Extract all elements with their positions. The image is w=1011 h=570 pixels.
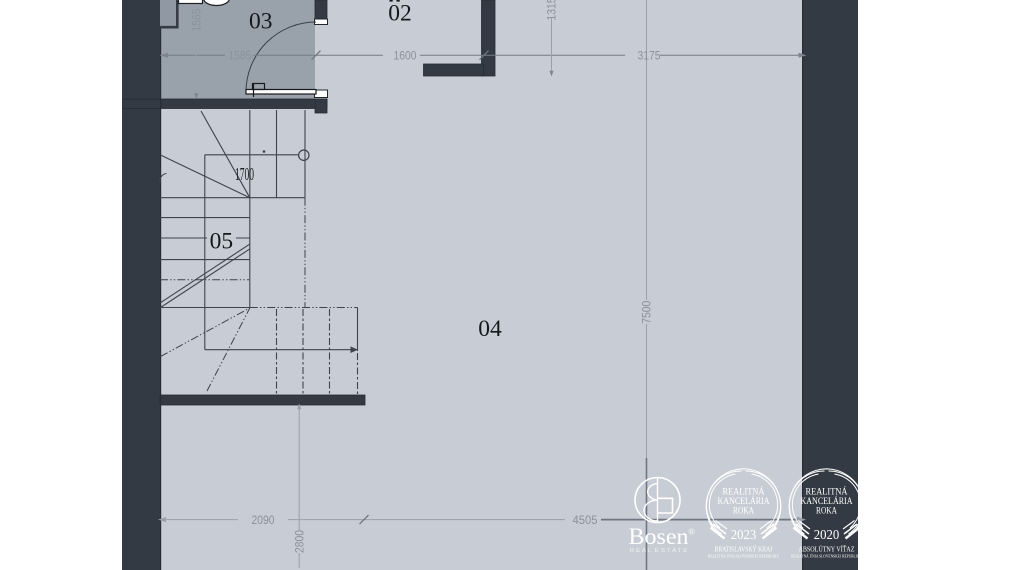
svg-text:1700: 1700: [235, 164, 254, 184]
svg-text:1315: 1315: [545, 0, 559, 21]
svg-text:02: 02: [388, 0, 412, 26]
svg-text:2090: 2090: [252, 513, 275, 527]
svg-text:03: 03: [249, 9, 273, 35]
svg-text:REALITNÁ: REALITNÁ: [806, 486, 848, 496]
svg-text:1585: 1585: [228, 48, 251, 62]
svg-text:KANCELÁRIA: KANCELÁRIA: [718, 496, 770, 506]
svg-text:R E A L E S T A T E: R E A L E S T A T E: [630, 548, 689, 554]
svg-text:3175: 3175: [638, 48, 661, 62]
svg-text:ROKA: ROKA: [733, 505, 754, 515]
svg-text:2020: 2020: [814, 528, 840, 543]
svg-text:1565: 1565: [190, 8, 204, 31]
svg-text:4505: 4505: [573, 513, 598, 527]
svg-text:KANCELÁRIA: KANCELÁRIA: [801, 496, 853, 506]
svg-text:REALITNÁ: REALITNÁ: [723, 486, 765, 496]
svg-text:1600: 1600: [394, 48, 417, 62]
svg-text:ROKA: ROKA: [816, 505, 837, 515]
svg-text:Bosen: Bosen: [629, 524, 690, 549]
svg-text:ABSOLÚTNY VÍŤAZ: ABSOLÚTNY VÍŤAZ: [799, 544, 855, 554]
svg-text:04: 04: [478, 316, 502, 342]
svg-text:BRATISLAVSKÝ KRAJ: BRATISLAVSKÝ KRAJ: [715, 544, 773, 554]
svg-text:05: 05: [210, 229, 234, 255]
svg-text:2800: 2800: [292, 530, 306, 553]
svg-text:®: ®: [688, 527, 695, 537]
svg-text:REALITNÁ ÚNIA SLOVENSKEJ REPUB: REALITNÁ ÚNIA SLOVENSKEJ REPUBLIKY: [791, 553, 863, 558]
svg-text:2023: 2023: [731, 528, 757, 543]
svg-text:REALITNÁ ÚNIA SLOVENSKEJ REPUB: REALITNÁ ÚNIA SLOVENSKEJ REPUBLIKY: [708, 553, 780, 558]
svg-text:7500: 7500: [640, 301, 654, 324]
